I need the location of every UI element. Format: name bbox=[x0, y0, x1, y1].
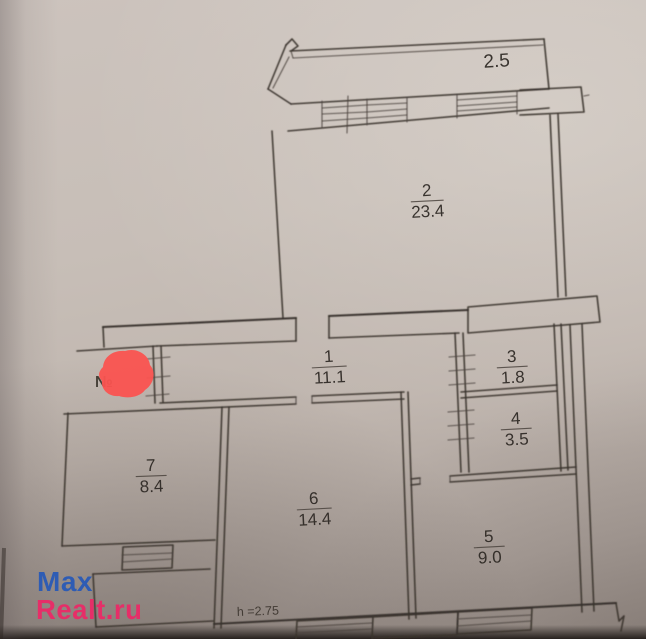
room3-number: 3 bbox=[506, 347, 516, 366]
room2-label: 2 23.4 bbox=[410, 180, 445, 222]
room7-number: 7 bbox=[146, 456, 156, 475]
room5-area: 9.0 bbox=[478, 547, 503, 567]
room6-area: 14.4 bbox=[298, 509, 332, 530]
paper-edge bbox=[1, 548, 4, 639]
ceiling-height: h =2.75 bbox=[237, 604, 280, 619]
room6-number: 6 bbox=[308, 489, 318, 508]
room7-label: 7 8.4 bbox=[135, 455, 166, 496]
balcony-area: 2.5 bbox=[483, 50, 511, 73]
watermark-max: Max bbox=[37, 566, 93, 597]
wall-lines bbox=[62, 39, 624, 639]
room5-walls bbox=[411, 467, 576, 485]
floor-plan-photo: 2.5 2 23.4 1 11.1 3 1.8 4 3.5 5 9.0 bbox=[0, 0, 646, 639]
room-labels: 2.5 2 23.4 1 11.1 3 1.8 4 3.5 5 9.0 bbox=[95, 50, 532, 619]
room5-number: 5 bbox=[483, 527, 493, 546]
floor-plan-svg: 2.5 2 23.4 1 11.1 3 1.8 4 3.5 5 9.0 bbox=[0, 0, 646, 639]
room2-walls bbox=[103, 131, 468, 347]
watermark-realt: Realt.ru bbox=[36, 594, 142, 625]
room3-area: 1.8 bbox=[501, 367, 526, 387]
room6-label: 6 14.4 bbox=[296, 488, 332, 530]
room3-label: 3 1.8 bbox=[496, 346, 528, 388]
room7-area: 8.4 bbox=[139, 477, 163, 497]
watermark: Max Realt.ru bbox=[36, 566, 142, 625]
redaction-blob bbox=[99, 350, 154, 397]
room1-number: 1 bbox=[323, 347, 333, 366]
room4-label: 4 3.5 bbox=[500, 408, 532, 450]
room4-area: 3.5 bbox=[505, 429, 530, 449]
balcony-label: 2.5 bbox=[483, 50, 511, 73]
ceiling-height-label: h =2.75 bbox=[237, 604, 280, 619]
room2-area: 23.4 bbox=[411, 201, 445, 222]
room5-label: 5 9.0 bbox=[473, 526, 505, 568]
room3-room4-walls bbox=[448, 324, 568, 472]
room4-number: 4 bbox=[510, 409, 520, 428]
room1-area: 11.1 bbox=[313, 367, 346, 388]
room1-label: 1 11.1 bbox=[311, 346, 347, 388]
room2-number: 2 bbox=[421, 181, 431, 200]
room6-right-wall bbox=[401, 392, 416, 619]
